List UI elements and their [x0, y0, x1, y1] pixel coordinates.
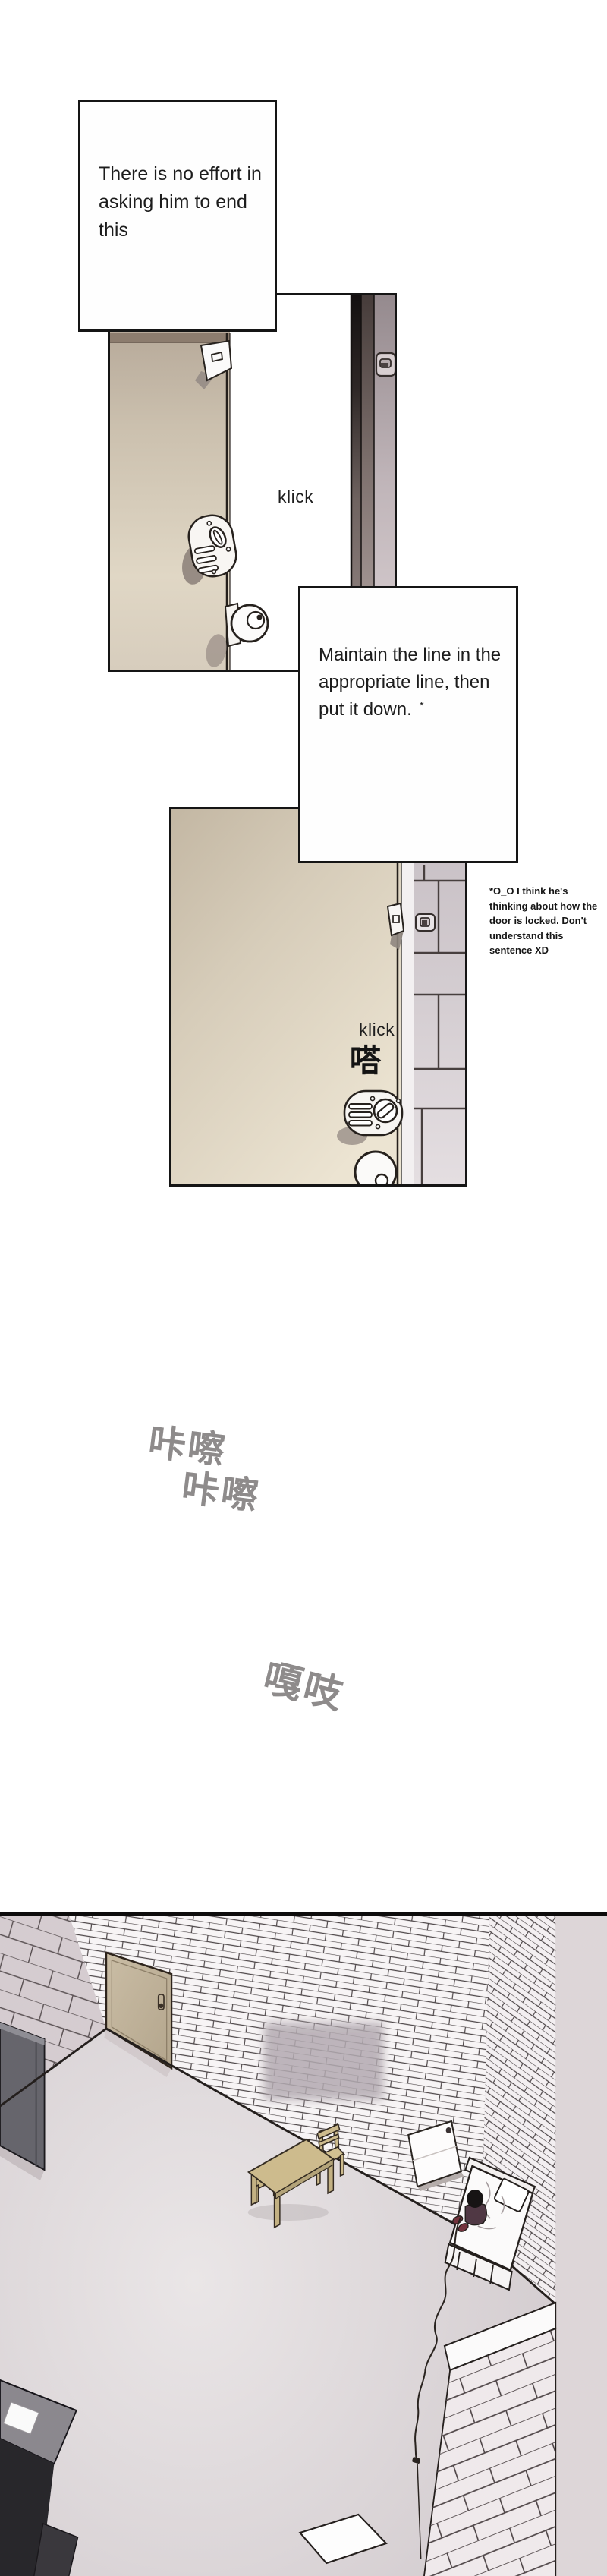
translator-note: *O_O I think he's thinking about how the… [489, 884, 605, 958]
caption-box-1: There is no effort in asking him to end … [78, 100, 277, 332]
comic-page: There is no effort in asking him to end … [0, 0, 607, 2576]
panel-room-overview [0, 1912, 607, 2576]
footnote-marker: * [420, 699, 424, 712]
caption-2-text: Maintain the line in the appropriate lin… [300, 588, 516, 726]
note-line: thinking about how the [489, 899, 605, 914]
caption-line: Maintain the line in the [319, 642, 508, 669]
note-line: *O_O I think he's [489, 884, 605, 899]
caption-1-text: There is no effort in asking him to end … [80, 102, 275, 244]
wall-shadow [264, 2023, 383, 2100]
caption-line: appropriate line, then [319, 669, 508, 696]
caption-line: put it down.* [319, 696, 508, 726]
strike-plate-icon [416, 914, 435, 931]
panel-door-closeup-2 [169, 807, 467, 1187]
note-line: sentence XD [489, 943, 605, 958]
door-knob-icon [355, 1152, 396, 1184]
sfx-click-cjk: 嗒 [350, 1035, 381, 1080]
note-line: door is locked. Don't [489, 913, 605, 929]
tiled-wall [414, 809, 465, 1184]
room-art [0, 1916, 607, 2576]
strike-plate-icon [376, 353, 395, 376]
sfx-klick-1: klick [278, 487, 313, 507]
sfx-gazhi: 嘎吱 [259, 1646, 352, 1720]
caption-line: There is no effort in [99, 160, 264, 188]
sfx-kacha-2: 咔嚓 [179, 1458, 264, 1521]
panel-2-art [171, 809, 465, 1184]
person-hair [467, 2190, 483, 2208]
caption-box-2: Maintain the line in the appropriate lin… [298, 586, 518, 863]
note-line: understand this [489, 929, 605, 944]
caption-line: asking him to end this [99, 188, 264, 244]
door-jamb [402, 809, 414, 1184]
board-knob-icon [446, 2127, 451, 2133]
